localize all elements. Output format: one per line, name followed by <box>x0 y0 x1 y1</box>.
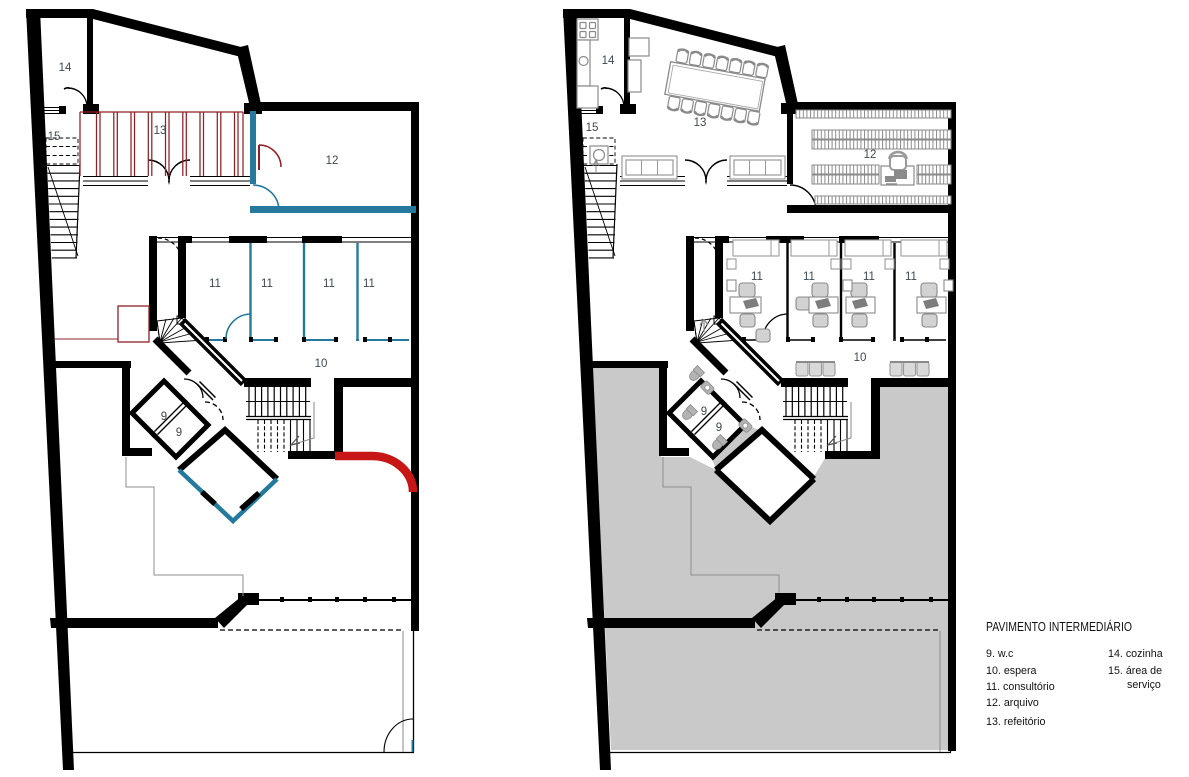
svg-text:11: 11 <box>209 278 221 290</box>
svg-text:14: 14 <box>59 62 72 74</box>
svg-text:12. arquivo: 12. arquivo <box>986 697 1039 709</box>
svg-text:10: 10 <box>854 352 867 364</box>
svg-text:13: 13 <box>694 117 707 129</box>
svg-text:11: 11 <box>863 271 875 283</box>
svg-text:9: 9 <box>161 411 167 423</box>
svg-text:10. espera: 10. espera <box>986 665 1037 677</box>
svg-text:13. refeitório: 13. refeitório <box>986 716 1045 728</box>
svg-text:9: 9 <box>716 422 722 434</box>
svg-text:9: 9 <box>176 427 182 439</box>
svg-text:serviço: serviço <box>1127 679 1161 691</box>
svg-text:15: 15 <box>586 122 599 134</box>
svg-text:12: 12 <box>864 149 877 161</box>
svg-text:11: 11 <box>261 278 273 290</box>
svg-text:13: 13 <box>154 125 167 137</box>
svg-text:11: 11 <box>751 271 763 283</box>
svg-text:9. w.c: 9. w.c <box>986 648 1014 660</box>
svg-text:11. consultório: 11. consultório <box>986 681 1055 693</box>
svg-text:11: 11 <box>323 278 335 290</box>
svg-text:10: 10 <box>315 358 328 370</box>
svg-text:PAVIMENTO INTERMEDIÁRIO: PAVIMENTO INTERMEDIÁRIO <box>986 619 1132 634</box>
svg-text:11: 11 <box>803 271 815 283</box>
svg-text:9: 9 <box>701 406 707 418</box>
svg-text:11: 11 <box>363 278 375 290</box>
svg-text:12: 12 <box>326 155 339 167</box>
svg-text:14: 14 <box>602 55 615 67</box>
svg-text:15: 15 <box>48 131 61 143</box>
svg-text:11: 11 <box>905 271 917 283</box>
svg-text:15. área de: 15. área de <box>1108 665 1162 677</box>
svg-text:14. cozinha: 14. cozinha <box>1108 648 1163 660</box>
